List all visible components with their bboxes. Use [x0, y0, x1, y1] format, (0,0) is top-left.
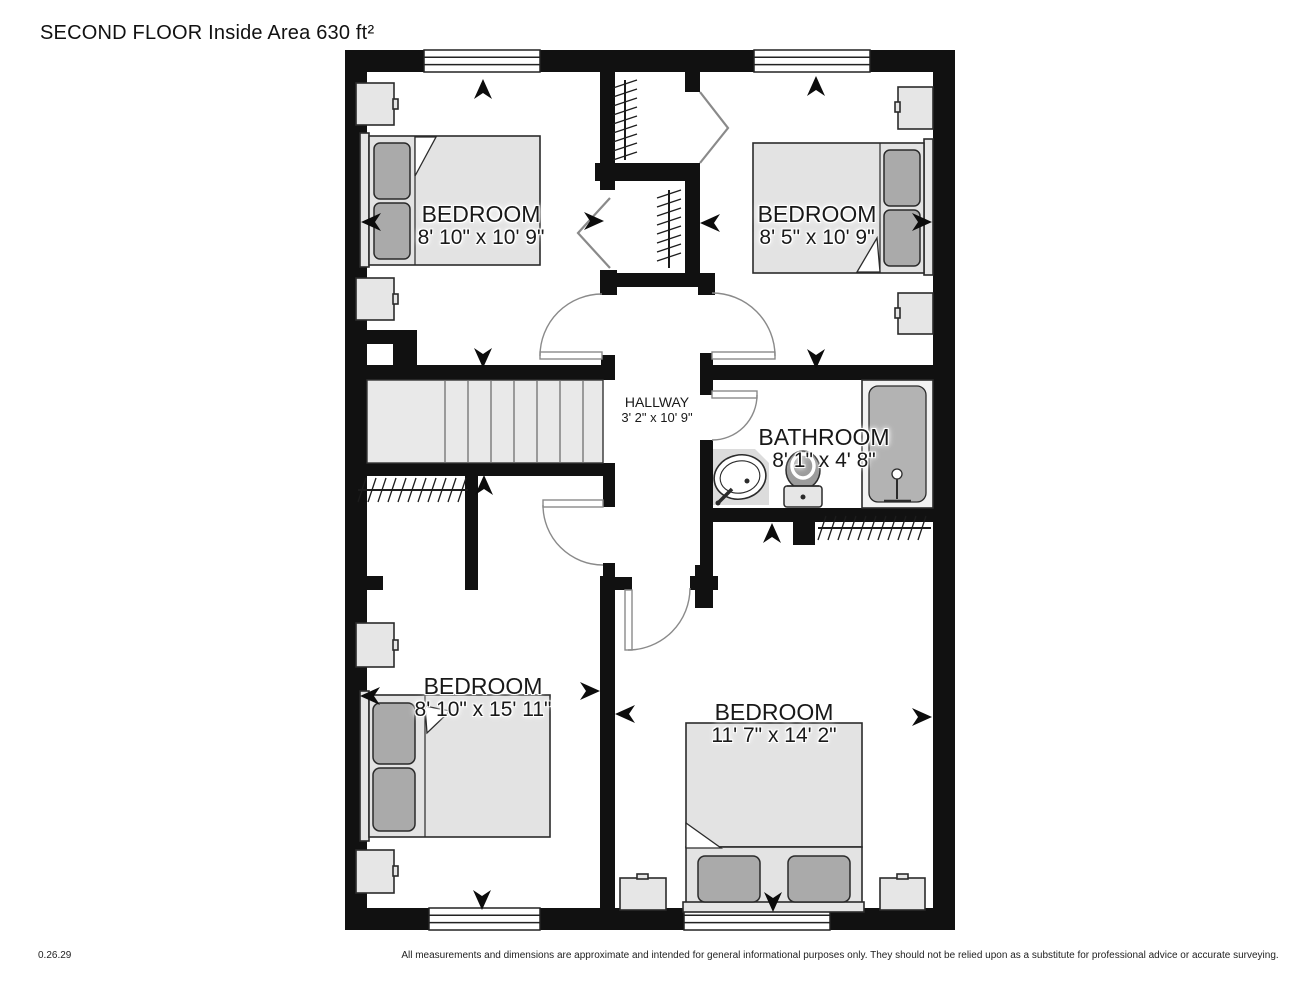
door-top-left-bedroom	[540, 294, 602, 359]
disclaimer-text: All measurements and dimensions are appr…	[401, 950, 1278, 961]
arrow-up-icon	[807, 76, 825, 96]
room-label-bedroom-top-right: BEDROOM 8' 5" x 10' 9"	[758, 202, 877, 249]
closet-hatch-bottom-closet	[657, 190, 681, 268]
arrow-right-icon	[912, 708, 932, 726]
room-label-bathroom: BATHROOM 8' 1" x 4' 8"	[758, 425, 889, 472]
page-title: SECOND FLOOR Inside Area 630 ft²	[40, 22, 374, 45]
nightstand	[895, 87, 933, 129]
door-bottom-left-bedroom	[543, 500, 603, 565]
room-name: BATHROOM	[758, 425, 889, 449]
version-number: 0.26.29	[38, 950, 71, 961]
floorplan-drawing	[0, 0, 1294, 1000]
nightstand	[895, 293, 933, 334]
window	[754, 50, 870, 72]
arrow-left-icon	[615, 705, 635, 723]
bed-bottom-right	[683, 723, 864, 912]
nightstand	[620, 874, 666, 910]
room-dimensions: 8' 5" x 10' 9"	[758, 226, 877, 249]
room-dimensions: 3' 2" x 10' 9"	[621, 410, 692, 425]
room-label-bedroom-bottom-right: BEDROOM 11' 7" x 14' 2"	[711, 700, 836, 747]
room-label-bedroom-top-left: BEDROOM 8' 10" x 10' 9"	[418, 202, 545, 249]
door-bottom-right-bedroom	[625, 588, 690, 650]
room-name: BEDROOM	[415, 674, 552, 698]
arrow-left-icon	[700, 214, 720, 232]
room-name: HALLWAY	[621, 395, 692, 410]
arrow-down-icon	[473, 890, 491, 910]
floorplan-page: SECOND FLOOR Inside Area 630 ft² BEDROOM…	[0, 0, 1294, 1000]
window	[429, 908, 540, 930]
window	[424, 50, 540, 72]
room-label-hallway: HALLWAY 3' 2" x 10' 9"	[621, 395, 692, 425]
arrow-right-icon	[580, 682, 600, 700]
nightstand	[356, 83, 398, 125]
closet-hatch-understair	[358, 478, 468, 502]
room-dimensions: 8' 10" x 10' 9"	[418, 226, 545, 249]
room-dimensions: 8' 10" x 15' 11"	[415, 698, 552, 721]
staircase	[367, 380, 603, 463]
room-name: BEDROOM	[758, 202, 877, 226]
arrow-up-icon	[474, 79, 492, 99]
closet-hatch-top-closet	[613, 80, 637, 160]
door-bathroom	[712, 391, 757, 440]
arrow-up-icon	[763, 523, 781, 543]
nightstand	[356, 623, 398, 667]
bifold-door-closet-right	[700, 92, 728, 163]
room-name: BEDROOM	[418, 202, 545, 226]
bifold-door-closet-left	[578, 198, 610, 268]
nightstand	[880, 874, 925, 910]
nightstand	[356, 850, 398, 893]
door-top-right-bedroom	[712, 293, 775, 359]
room-dimensions: 8' 1" x 4' 8"	[758, 449, 889, 472]
nightstand	[356, 278, 398, 320]
room-label-bedroom-bottom-left: BEDROOM 8' 10" x 15' 11"	[415, 674, 552, 721]
room-name: BEDROOM	[711, 700, 836, 724]
room-dimensions: 11' 7" x 14' 2"	[711, 724, 836, 747]
